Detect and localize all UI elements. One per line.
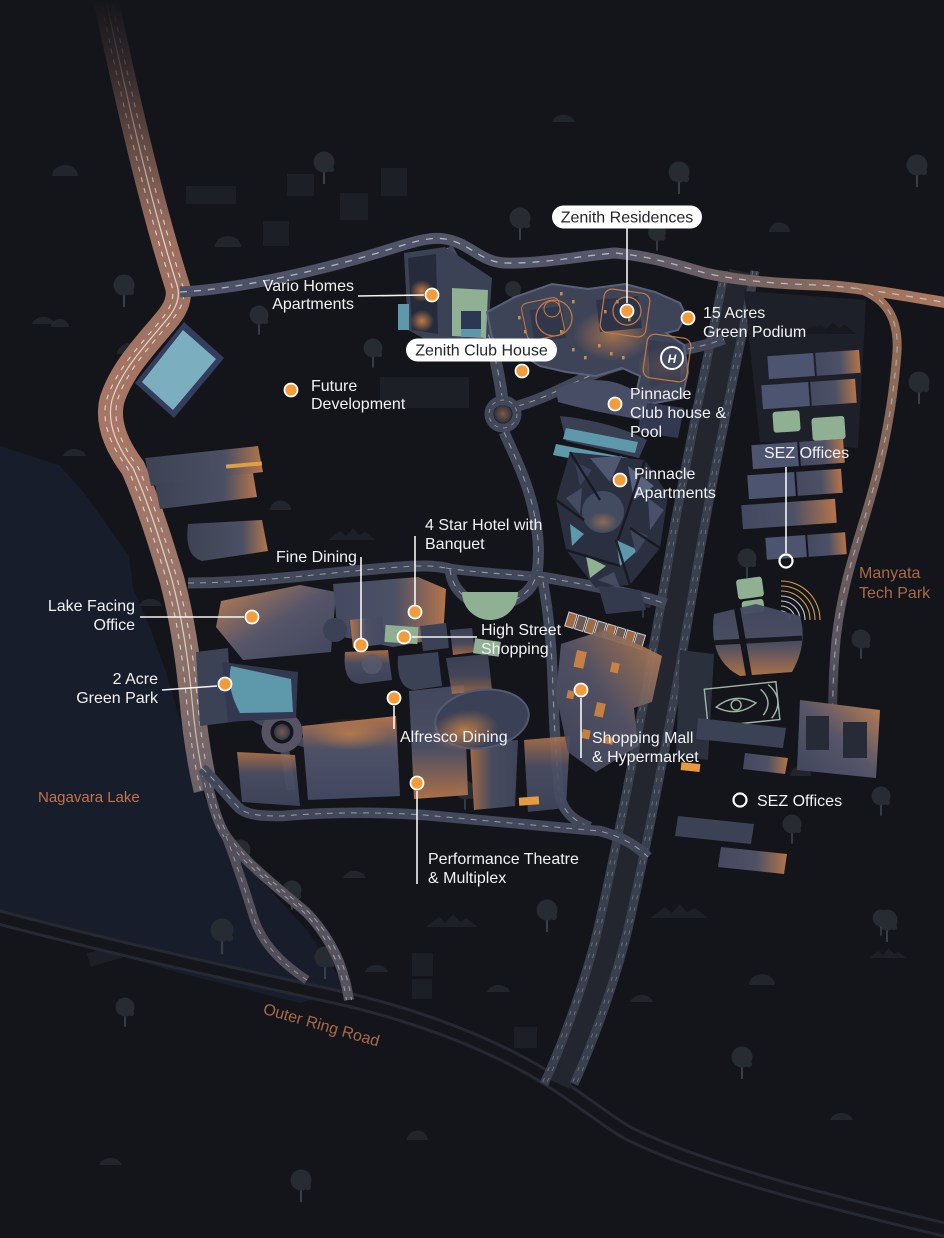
svg-text:High Street: High Street xyxy=(481,622,562,639)
svg-text:& Hypermarket: & Hypermarket xyxy=(592,749,699,766)
svg-text:Club house &: Club house & xyxy=(630,405,726,422)
svg-text:Future: Future xyxy=(311,378,357,395)
svg-text:Nagavara Lake: Nagavara Lake xyxy=(38,789,140,806)
svg-text:H: H xyxy=(668,352,677,366)
svg-text:Zenith Residences: Zenith Residences xyxy=(561,210,694,227)
svg-text:Vario Homes: Vario Homes xyxy=(263,278,354,295)
svg-text:Fine Dining: Fine Dining xyxy=(276,549,357,566)
svg-text:15 Acres: 15 Acres xyxy=(703,305,765,322)
svg-text:Manyata: Manyata xyxy=(859,565,920,582)
svg-text:SEZ Offices: SEZ Offices xyxy=(764,445,849,462)
svg-text:Shopping Mall: Shopping Mall xyxy=(592,730,693,747)
svg-text:2 Acre: 2 Acre xyxy=(113,671,158,688)
svg-text:Green Podium: Green Podium xyxy=(703,324,806,341)
svg-text:Apartments: Apartments xyxy=(272,296,354,313)
svg-text:Development: Development xyxy=(311,396,406,413)
svg-text:Apartments: Apartments xyxy=(634,485,716,502)
svg-text:Pool: Pool xyxy=(630,424,662,441)
svg-text:Office: Office xyxy=(94,617,136,634)
svg-text:Pinnacle: Pinnacle xyxy=(630,386,691,403)
svg-text:Pinnacle: Pinnacle xyxy=(634,466,695,483)
svg-text:Tech Park: Tech Park xyxy=(859,585,931,602)
svg-text:Performance Theatre: Performance Theatre xyxy=(428,851,579,868)
svg-text:4 Star Hotel with: 4 Star Hotel with xyxy=(425,517,542,534)
svg-text:Alfresco Dining: Alfresco Dining xyxy=(400,729,508,746)
svg-text:Lake Facing: Lake Facing xyxy=(48,598,135,615)
svg-text:Zenith Club House: Zenith Club House xyxy=(415,343,548,360)
svg-text:Banquet: Banquet xyxy=(425,536,485,553)
svg-text:Shopping: Shopping xyxy=(481,641,549,658)
svg-text:SEZ Offices: SEZ Offices xyxy=(757,793,842,810)
svg-text:Green Park: Green Park xyxy=(76,690,159,707)
svg-text:& Multiplex: & Multiplex xyxy=(428,870,506,887)
